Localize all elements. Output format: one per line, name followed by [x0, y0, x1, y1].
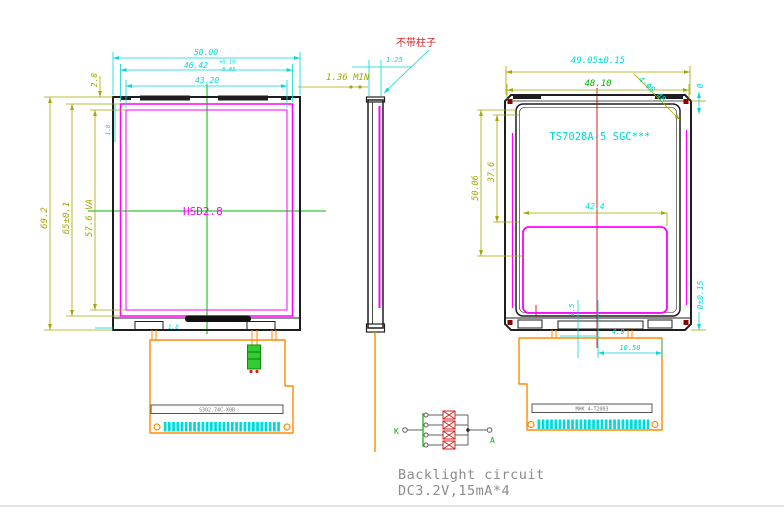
dim-back-width-inner: 48.10 [584, 79, 611, 89]
front-model-label: HSD2.8 [183, 205, 223, 218]
dim-dot [349, 85, 352, 88]
led-branches [424, 411, 468, 449]
front-top-tab-right [218, 96, 268, 101]
dim-height-mid: 65±0.1 [62, 202, 72, 235]
front-view: HSD2.8 1.8 S302.74C-X0B [40, 48, 326, 433]
dim-back-width-mid: 42.4 [585, 202, 604, 211]
back-dims-right: 0 0±0.15 [691, 83, 706, 330]
front-fpc: S302.74C-X0B [150, 330, 293, 433]
dim-back-height2: 37.6 [487, 162, 497, 183]
dim-back-width-outer: 49.05±0.15 [571, 56, 625, 66]
front-top-tab-left [140, 96, 190, 101]
dim-back-small2: 1.5 [568, 304, 576, 317]
back-backlight-area [523, 227, 667, 313]
terminal-k-node [403, 428, 408, 433]
side-note-text: 不带柱子 [396, 36, 436, 49]
back-dims-top: 49.05±0.15 48.10 4-Φ0.48 [506, 56, 690, 120]
led-branch [424, 441, 468, 449]
front-fpc-hole-right [284, 424, 290, 430]
back-corner-pad [508, 99, 513, 104]
back-model-label: TS7028A-5 SGC*** [549, 131, 650, 143]
front-connector-bar [185, 316, 251, 323]
dim-width-inner: 43.20 [195, 76, 219, 85]
dim-width-mid-tol-up: +0.10 [219, 60, 236, 66]
dim-height-va: 57.6 VA [85, 199, 95, 237]
dim-dot [358, 85, 361, 88]
circuit-title: Backlight circuit [398, 467, 545, 483]
side-profile [368, 100, 383, 328]
back-fpc-hole-left [528, 422, 534, 428]
dim-hole-callout: 4-Φ0.48 [637, 75, 668, 104]
dim-back-small1: 4.0 [612, 328, 625, 336]
back-top-tab-left [513, 95, 541, 99]
lcd-module-drawing: HSD2.8 1.8 S302.74C-X0B [0, 0, 784, 519]
back-fpc-body [519, 338, 662, 430]
back-bottom-notch-left [518, 320, 542, 328]
dim-right-bottom: 0±0.15 [696, 280, 705, 309]
back-bottom-notch-right [648, 320, 672, 328]
dim-height-outer: 69.2 [40, 207, 50, 229]
back-corner-pad [684, 99, 689, 104]
drawing-canvas: HSD2.8 1.8 S302.74C-X0B [0, 0, 784, 519]
front-bottom-notch-left [135, 322, 163, 330]
dim-back-bottom-width: 10.50 [619, 344, 640, 352]
front-bottom-notch-right [247, 322, 275, 330]
side-dim-min: 1.36 MIN [326, 73, 370, 83]
led-branch [424, 421, 468, 429]
back-bottom-recess [558, 321, 643, 329]
terminal-a-label: A [490, 436, 495, 445]
back-fpc-fingers [536, 420, 649, 430]
terminal-k-label: K [394, 427, 399, 436]
component-pin [255, 370, 258, 373]
back-dims-left: 50.06 37.6 [471, 110, 523, 256]
back-dim-mid: 42.4 [523, 202, 667, 226]
dim-back-height1: 50.06 [471, 175, 481, 201]
front-fpc-fingers [163, 422, 281, 432]
front-dim-small-bottom: 1.8 [168, 324, 179, 331]
back-fpc-label: MHK 4-T2003 [575, 407, 608, 413]
back-fpc: MHK 4-T2003 [519, 330, 662, 430]
dim-top-offset: 2.8 [90, 73, 99, 88]
side-view: 不带柱子 1.25 1.36 MIN [298, 36, 436, 452]
dim-small-top: 1.8 [105, 124, 112, 135]
led-branch [424, 411, 468, 419]
dim-width-mid: 46.42 [184, 61, 208, 70]
back-corner-pad [684, 320, 689, 325]
dim-width-outer: 50.00 [194, 48, 218, 57]
dim-width-mid-tol-dn: -0.05 [219, 67, 236, 73]
circuit-spec: DC3.2V,15mA*4 [398, 483, 510, 499]
front-component [248, 345, 261, 369]
backlight-circuit: K [394, 411, 545, 499]
front-top-notch-right [281, 96, 291, 100]
back-fpc-hole-right [652, 422, 658, 428]
back-corner-pad [508, 320, 513, 325]
front-fpc-label: S302.74C-X0B [199, 408, 235, 414]
terminal-a-node [487, 428, 492, 433]
front-fpc-body [150, 340, 293, 433]
dim-right-top: 0 [696, 83, 705, 88]
front-fpc-hole-left [154, 424, 160, 430]
side-dim-top: 1.25 [386, 56, 403, 64]
led-branch [424, 431, 468, 439]
component-pin [249, 370, 252, 373]
back-view: TS7028A-5 SGC*** MHK 4-T2003 49.05±0.15 [471, 56, 706, 430]
